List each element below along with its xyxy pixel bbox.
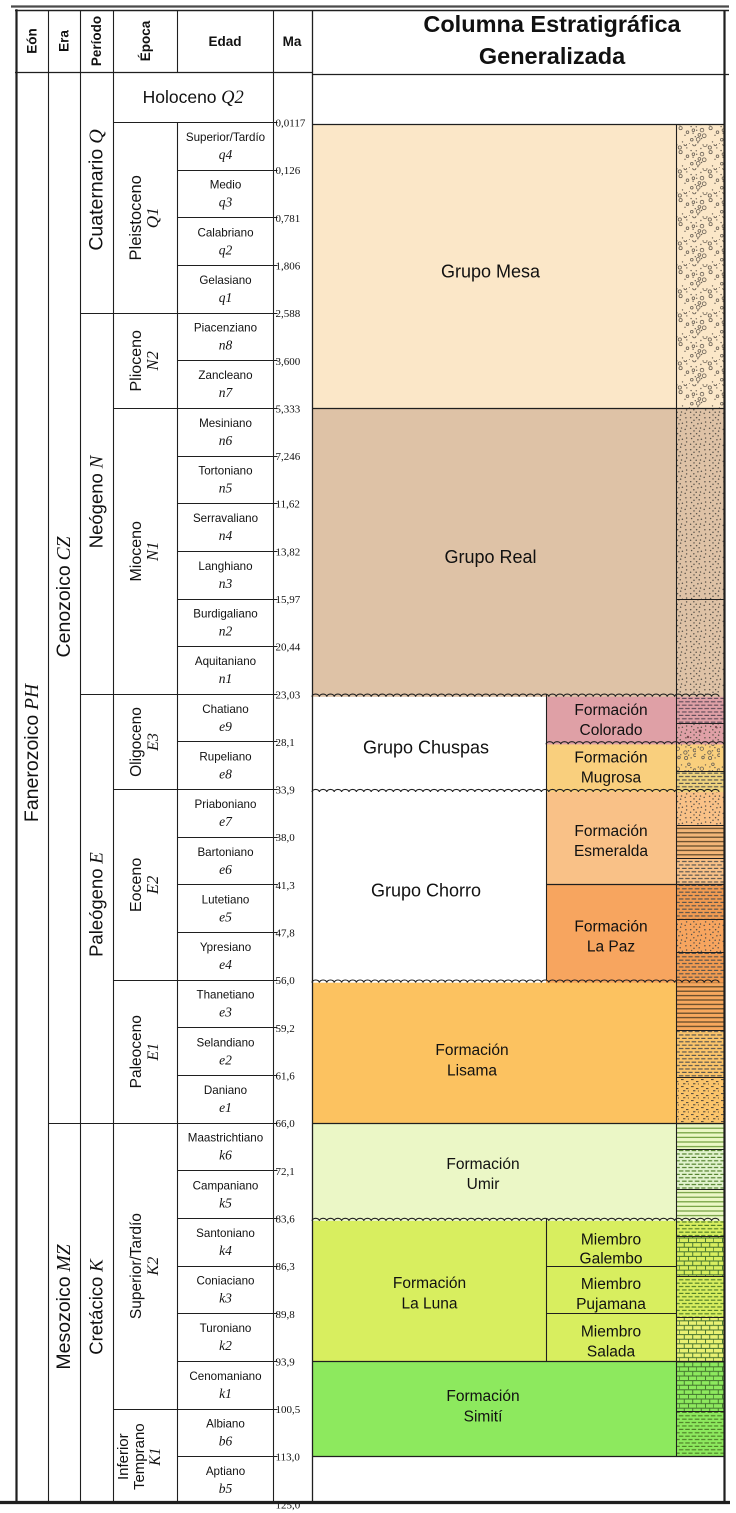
svg-text:Superior/Tardío: Superior/Tardío bbox=[128, 1213, 145, 1319]
svg-text:N2: N2 bbox=[143, 351, 162, 371]
svg-text:Q1: Q1 bbox=[143, 207, 162, 228]
svg-text:q4: q4 bbox=[219, 147, 233, 162]
svg-text:Umir: Umir bbox=[467, 1176, 500, 1193]
svg-text:1,806: 1,806 bbox=[276, 260, 301, 272]
svg-text:Mesozoico MZ: Mesozoico MZ bbox=[53, 1244, 75, 1369]
svg-text:Priaboniano: Priaboniano bbox=[195, 798, 257, 811]
svg-text:Época: Época bbox=[138, 20, 153, 61]
svg-text:Formación: Formación bbox=[446, 1388, 519, 1405]
svg-text:Grupo Chuspas: Grupo Chuspas bbox=[363, 738, 489, 758]
svg-text:Período: Período bbox=[89, 16, 104, 66]
svg-text:89,8: 89,8 bbox=[276, 1309, 296, 1321]
svg-text:Salada: Salada bbox=[587, 1344, 636, 1361]
svg-text:Daniano: Daniano bbox=[204, 1084, 247, 1097]
svg-text:11,62: 11,62 bbox=[276, 499, 300, 511]
svg-text:47,8: 47,8 bbox=[276, 928, 296, 940]
svg-text:k6: k6 bbox=[219, 1148, 232, 1163]
svg-text:Galembo: Galembo bbox=[580, 1251, 643, 1268]
svg-text:b6: b6 bbox=[219, 1434, 233, 1449]
svg-text:K2: K2 bbox=[145, 1257, 162, 1277]
svg-text:93,9: 93,9 bbox=[276, 1356, 296, 1368]
svg-text:Ma: Ma bbox=[283, 34, 302, 49]
svg-text:Formación: Formación bbox=[574, 919, 647, 936]
svg-text:Miembro: Miembro bbox=[581, 1276, 641, 1293]
svg-text:Paleoceno: Paleoceno bbox=[128, 1015, 145, 1088]
svg-text:k1: k1 bbox=[219, 1386, 232, 1401]
svg-text:Cretácico K: Cretácico K bbox=[86, 1258, 108, 1355]
svg-text:Era: Era bbox=[57, 30, 72, 52]
svg-text:13,82: 13,82 bbox=[276, 546, 301, 558]
svg-text:Burdigaliano: Burdigaliano bbox=[193, 608, 257, 621]
svg-text:n8: n8 bbox=[219, 338, 233, 353]
svg-text:Turoniano: Turoniano bbox=[200, 1322, 252, 1335]
svg-text:5,333: 5,333 bbox=[276, 403, 301, 415]
svg-text:Pujamana: Pujamana bbox=[576, 1296, 646, 1313]
svg-text:e9: e9 bbox=[219, 719, 232, 734]
svg-text:Formación: Formación bbox=[574, 823, 647, 840]
svg-text:28,1: 28,1 bbox=[276, 737, 295, 749]
svg-text:33,9: 33,9 bbox=[276, 785, 296, 797]
svg-text:Ypresiano: Ypresiano bbox=[200, 941, 251, 954]
svg-text:n4: n4 bbox=[219, 528, 233, 543]
svg-text:Neógeno N: Neógeno N bbox=[86, 454, 108, 548]
svg-text:Holoceno Q2: Holoceno Q2 bbox=[143, 87, 244, 108]
svg-text:Formación: Formación bbox=[393, 1275, 466, 1292]
svg-text:2,588: 2,588 bbox=[276, 308, 301, 320]
svg-text:Oligoceno: Oligoceno bbox=[128, 707, 145, 777]
svg-text:Piacenziano: Piacenziano bbox=[194, 322, 257, 335]
svg-text:Superior/Tardío: Superior/Tardío bbox=[186, 131, 265, 144]
svg-text:Eón: Eón bbox=[25, 28, 40, 54]
svg-text:n7: n7 bbox=[219, 385, 234, 400]
svg-text:La Luna: La Luna bbox=[401, 1295, 457, 1312]
svg-text:61,6: 61,6 bbox=[276, 1071, 296, 1083]
svg-text:k5: k5 bbox=[219, 1195, 232, 1210]
svg-text:Santoniano: Santoniano bbox=[196, 1227, 255, 1240]
svg-text:Medio: Medio bbox=[210, 179, 242, 192]
svg-text:e3: e3 bbox=[219, 1005, 232, 1020]
svg-text:0,0117: 0,0117 bbox=[276, 118, 306, 130]
svg-text:Bartoniano: Bartoniano bbox=[197, 846, 253, 859]
svg-text:66,0: 66,0 bbox=[276, 1118, 296, 1130]
svg-text:15,97: 15,97 bbox=[276, 594, 301, 606]
svg-text:Aquitaniano: Aquitaniano bbox=[195, 655, 256, 668]
svg-text:q2: q2 bbox=[219, 242, 233, 257]
svg-text:Grupo Mesa: Grupo Mesa bbox=[441, 262, 541, 282]
svg-text:7,246: 7,246 bbox=[276, 451, 301, 463]
svg-text:Formación: Formación bbox=[574, 702, 647, 719]
svg-text:Edad: Edad bbox=[208, 34, 241, 49]
svg-text:Paleógeno E: Paleógeno E bbox=[86, 852, 108, 957]
svg-text:e8: e8 bbox=[219, 766, 232, 781]
svg-text:72,1: 72,1 bbox=[276, 1166, 295, 1178]
svg-text:41,3: 41,3 bbox=[276, 880, 296, 892]
svg-text:Langhiano: Langhiano bbox=[198, 560, 252, 573]
svg-text:Inferior: Inferior bbox=[115, 1433, 132, 1480]
svg-text:N1: N1 bbox=[143, 542, 162, 562]
svg-text:Chatiano: Chatiano bbox=[202, 703, 248, 716]
svg-text:113,0: 113,0 bbox=[276, 1452, 301, 1464]
svg-text:Mugrosa: Mugrosa bbox=[581, 769, 642, 786]
svg-text:Formación: Formación bbox=[435, 1042, 508, 1059]
svg-text:83,6: 83,6 bbox=[276, 1214, 296, 1226]
svg-text:Selandiano: Selandiano bbox=[196, 1036, 254, 1049]
svg-text:k4: k4 bbox=[219, 1243, 232, 1258]
svg-text:Thanetiano: Thanetiano bbox=[196, 989, 254, 1002]
svg-text:Simití: Simití bbox=[464, 1408, 503, 1425]
svg-text:38,0: 38,0 bbox=[276, 832, 296, 844]
svg-text:n1: n1 bbox=[219, 671, 233, 686]
svg-text:Mesiniano: Mesiniano bbox=[199, 417, 252, 430]
svg-text:Calabriano: Calabriano bbox=[197, 226, 253, 239]
svg-text:Aptiano: Aptiano bbox=[206, 1465, 245, 1478]
svg-text:Maastrichtiano: Maastrichtiano bbox=[188, 1132, 263, 1145]
svg-text:Esmeralda: Esmeralda bbox=[574, 843, 648, 860]
svg-text:e7: e7 bbox=[219, 814, 233, 829]
svg-text:q3: q3 bbox=[219, 195, 233, 210]
svg-text:Temprano: Temprano bbox=[131, 1423, 148, 1490]
svg-text:n3: n3 bbox=[219, 576, 233, 591]
svg-text:Grupo Real: Grupo Real bbox=[444, 547, 536, 567]
svg-text:20,44: 20,44 bbox=[276, 642, 301, 654]
svg-text:Cuaternario Q: Cuaternario Q bbox=[86, 129, 108, 251]
svg-text:Albiano: Albiano bbox=[206, 1418, 245, 1431]
svg-text:Colorado: Colorado bbox=[580, 722, 643, 739]
svg-text:Generalizada: Generalizada bbox=[479, 43, 626, 69]
svg-text:Serravaliano: Serravaliano bbox=[193, 512, 258, 525]
svg-text:0,126: 0,126 bbox=[276, 165, 301, 177]
svg-text:Lutetiano: Lutetiano bbox=[202, 893, 250, 906]
svg-text:Miembro: Miembro bbox=[581, 1232, 641, 1249]
svg-text:q1: q1 bbox=[219, 290, 233, 305]
svg-text:Tortoniano: Tortoniano bbox=[198, 465, 252, 478]
svg-text:E2: E2 bbox=[143, 876, 162, 895]
svg-text:Coniaciano: Coniaciano bbox=[196, 1275, 254, 1288]
svg-text:86,3: 86,3 bbox=[276, 1261, 296, 1273]
svg-text:56,0: 56,0 bbox=[276, 975, 296, 987]
svg-text:n6: n6 bbox=[219, 433, 233, 448]
svg-text:Cenomaniano: Cenomaniano bbox=[189, 1370, 261, 1383]
svg-text:e4: e4 bbox=[219, 957, 232, 972]
svg-text:e2: e2 bbox=[219, 1052, 232, 1067]
svg-text:La Paz: La Paz bbox=[587, 939, 635, 956]
svg-text:23,03: 23,03 bbox=[276, 689, 301, 701]
svg-text:59,2: 59,2 bbox=[276, 1023, 295, 1035]
svg-text:Cenozoico CZ: Cenozoico CZ bbox=[53, 536, 75, 657]
svg-text:3,600: 3,600 bbox=[276, 356, 301, 368]
svg-text:e1: e1 bbox=[219, 1100, 232, 1115]
svg-text:Campaniano: Campaniano bbox=[193, 1179, 259, 1192]
svg-text:Grupo Chorro: Grupo Chorro bbox=[371, 880, 481, 900]
svg-text:E1: E1 bbox=[145, 1043, 162, 1062]
svg-text:Lisama: Lisama bbox=[447, 1062, 497, 1079]
svg-text:Formación: Formación bbox=[574, 749, 647, 766]
svg-text:Gelasiano: Gelasiano bbox=[199, 274, 251, 287]
svg-text:Formación: Formación bbox=[446, 1156, 519, 1173]
svg-text:n2: n2 bbox=[219, 624, 233, 639]
svg-text:k3: k3 bbox=[219, 1291, 232, 1306]
svg-text:Columna Estratigráfica: Columna Estratigráfica bbox=[423, 11, 681, 37]
svg-text:100,5: 100,5 bbox=[276, 1404, 301, 1416]
svg-text:K1: K1 bbox=[147, 1448, 164, 1467]
svg-text:e6: e6 bbox=[219, 862, 232, 877]
svg-text:Miembro: Miembro bbox=[581, 1324, 641, 1341]
svg-text:E3: E3 bbox=[145, 733, 162, 752]
svg-text:Rupeliano: Rupeliano bbox=[199, 750, 251, 763]
svg-text:0,781: 0,781 bbox=[276, 213, 301, 225]
svg-text:k2: k2 bbox=[219, 1338, 232, 1353]
svg-text:n5: n5 bbox=[219, 481, 233, 496]
svg-text:Fanerozoico PH: Fanerozoico PH bbox=[21, 683, 43, 822]
svg-text:b5: b5 bbox=[219, 1481, 233, 1496]
svg-text:Zancleano: Zancleano bbox=[198, 369, 252, 382]
svg-text:e5: e5 bbox=[219, 909, 232, 924]
